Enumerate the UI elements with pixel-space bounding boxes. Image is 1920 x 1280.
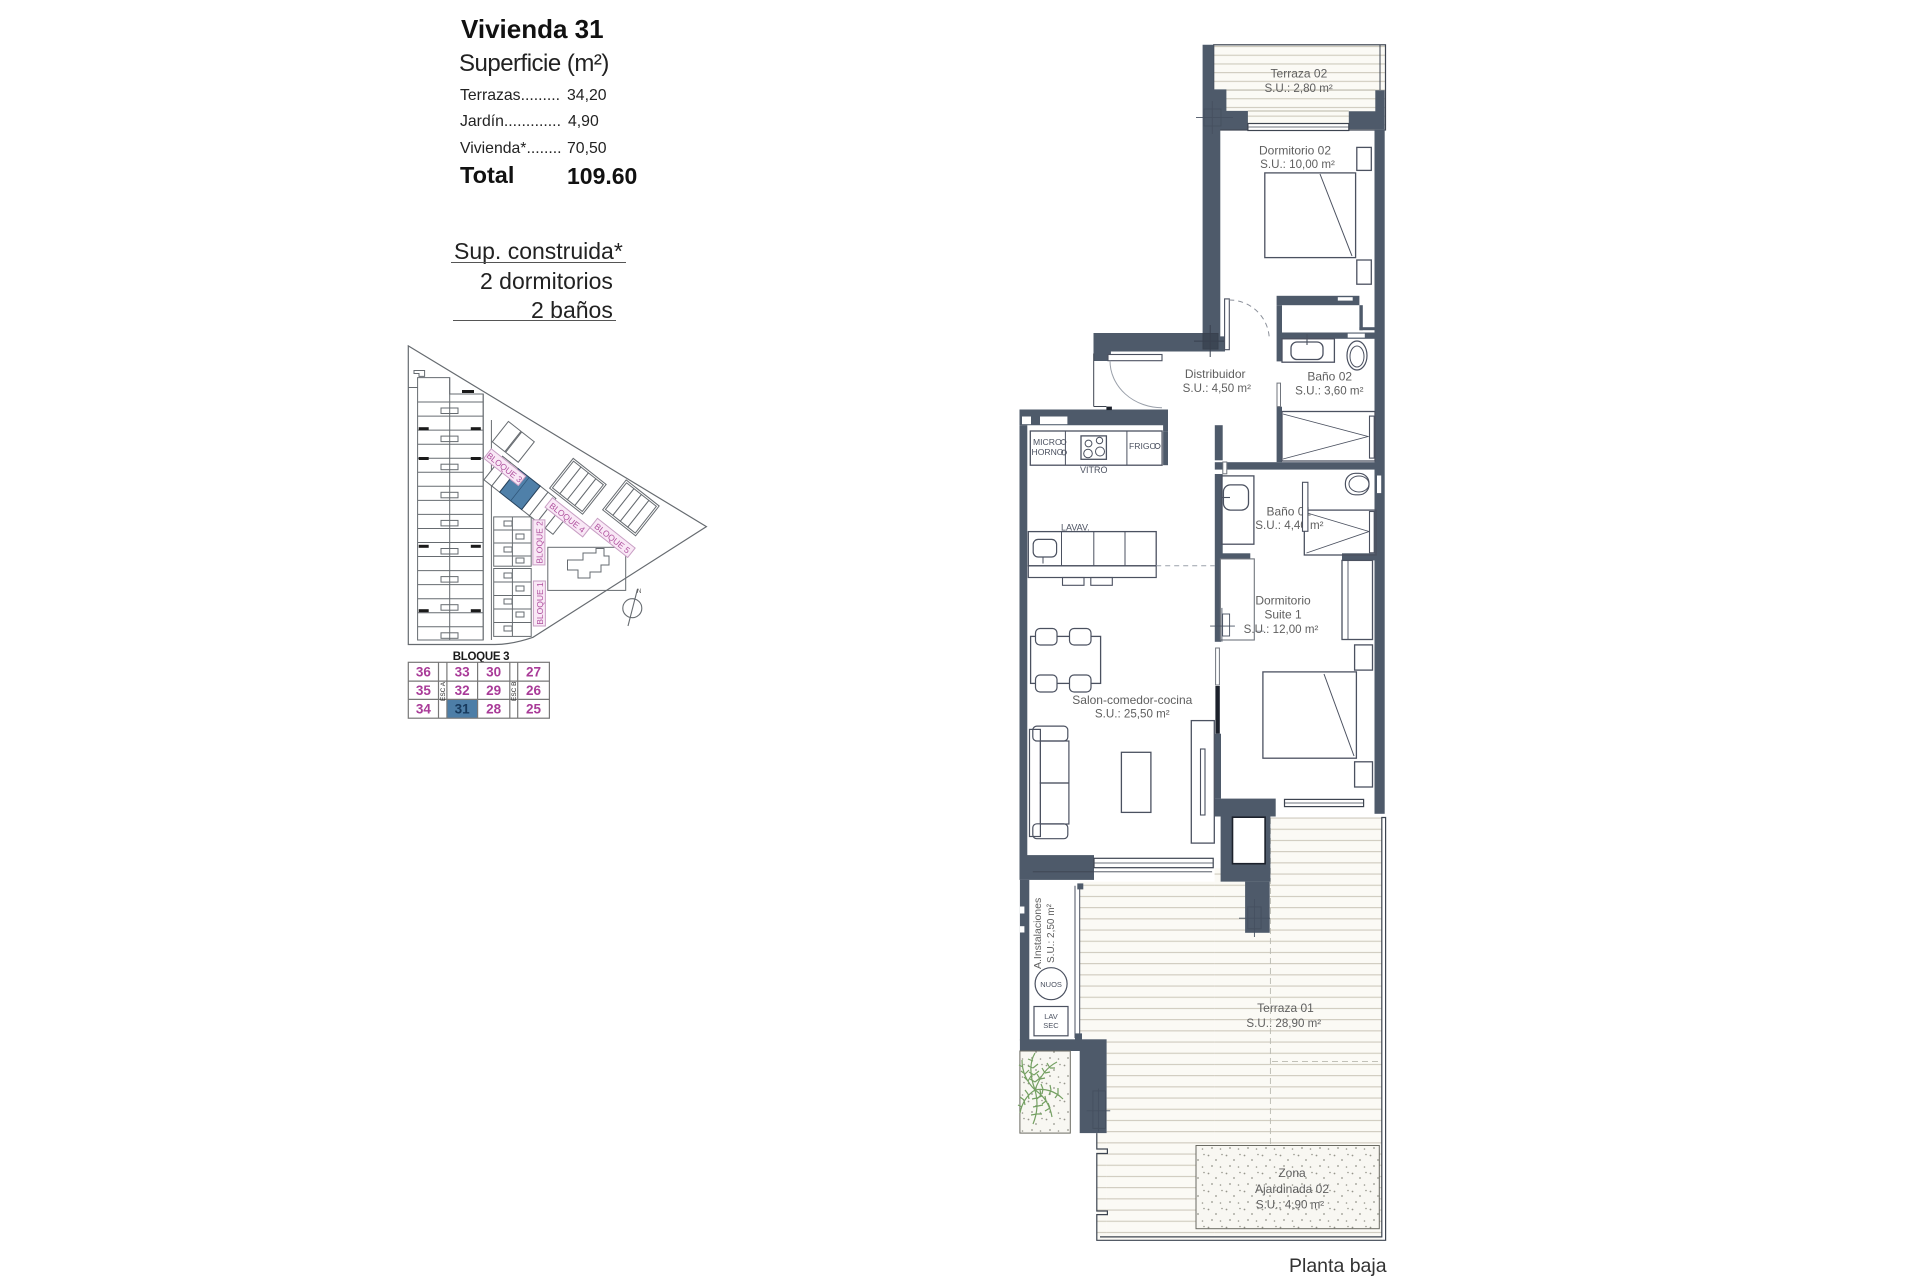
svg-text:MICRO: MICRO xyxy=(1033,437,1062,447)
svg-text:Distribuidor: Distribuidor xyxy=(1185,367,1246,381)
svg-text:32: 32 xyxy=(455,683,470,698)
svg-text:Zona: Zona xyxy=(1278,1166,1306,1180)
svg-text:ESC B: ESC B xyxy=(511,681,518,701)
svg-text:FRIGO: FRIGO xyxy=(1129,441,1157,451)
svg-text:Terraza 01: Terraza 01 xyxy=(1257,1001,1314,1015)
svg-text:LAV: LAV xyxy=(1044,1012,1058,1021)
svg-text:NUOS: NUOS xyxy=(1040,980,1062,989)
svg-text:35: 35 xyxy=(416,683,432,698)
svg-text:S.U.: 3,60 m²: S.U.: 3,60 m² xyxy=(1295,385,1363,398)
svg-text:Ajardinada 02: Ajardinada 02 xyxy=(1255,1182,1329,1196)
svg-text:S.U.: 12,00 m²: S.U.: 12,00 m² xyxy=(1244,623,1319,636)
svg-text:Suite 1: Suite 1 xyxy=(1264,608,1302,622)
svg-text:BLOQUE 1: BLOQUE 1 xyxy=(535,582,545,625)
svg-text:S.U.: 4,90 m²: S.U.: 4,90 m² xyxy=(1256,1199,1324,1212)
svg-text:30: 30 xyxy=(486,665,501,680)
svg-text:S.U.: 2,50 m²: S.U.: 2,50 m² xyxy=(1046,903,1057,963)
svg-text:BLOQUE 3: BLOQUE 3 xyxy=(453,651,509,663)
svg-text:S.U.: 25,50 m²: S.U.: 25,50 m² xyxy=(1095,708,1170,721)
svg-text:36: 36 xyxy=(416,665,432,680)
svg-text:Baño 02: Baño 02 xyxy=(1307,370,1352,384)
svg-text:VITRO: VITRO xyxy=(1080,465,1108,475)
svg-text:Terraza 02: Terraza 02 xyxy=(1271,67,1328,81)
svg-text:26: 26 xyxy=(526,683,542,698)
svg-text:A.Instalaciones: A.Instalaciones xyxy=(1032,898,1044,969)
svg-text:S.U.: 28,90 m²: S.U.: 28,90 m² xyxy=(1246,1017,1321,1030)
svg-text:S.U.: 4,40 m²: S.U.: 4,40 m² xyxy=(1255,519,1323,532)
svg-text:BLOQUE 2: BLOQUE 2 xyxy=(534,521,544,564)
svg-text:34: 34 xyxy=(416,701,432,716)
svg-text:Dormitorio 02: Dormitorio 02 xyxy=(1259,144,1331,158)
svg-text:25: 25 xyxy=(526,701,542,716)
svg-text:S.U.: 2,80 m²: S.U.: 2,80 m² xyxy=(1264,82,1332,95)
svg-text:29: 29 xyxy=(486,683,501,698)
svg-text:Dormitorio: Dormitorio xyxy=(1255,594,1311,608)
svg-text:HORNO: HORNO xyxy=(1032,447,1064,457)
svg-text:Salon-comedor-cocina: Salon-comedor-cocina xyxy=(1072,693,1192,707)
svg-text:ESC A: ESC A xyxy=(440,681,447,701)
svg-text:N: N xyxy=(637,589,641,595)
svg-text:SEC: SEC xyxy=(1043,1021,1059,1030)
svg-text:S.U.: 4,50 m²: S.U.: 4,50 m² xyxy=(1183,382,1251,395)
svg-text:33: 33 xyxy=(455,665,471,680)
svg-text:27: 27 xyxy=(526,665,541,680)
svg-text:31: 31 xyxy=(455,701,471,716)
svg-text:28: 28 xyxy=(486,701,502,716)
svg-text:S.U.: 10,00 m²: S.U.: 10,00 m² xyxy=(1260,158,1335,171)
